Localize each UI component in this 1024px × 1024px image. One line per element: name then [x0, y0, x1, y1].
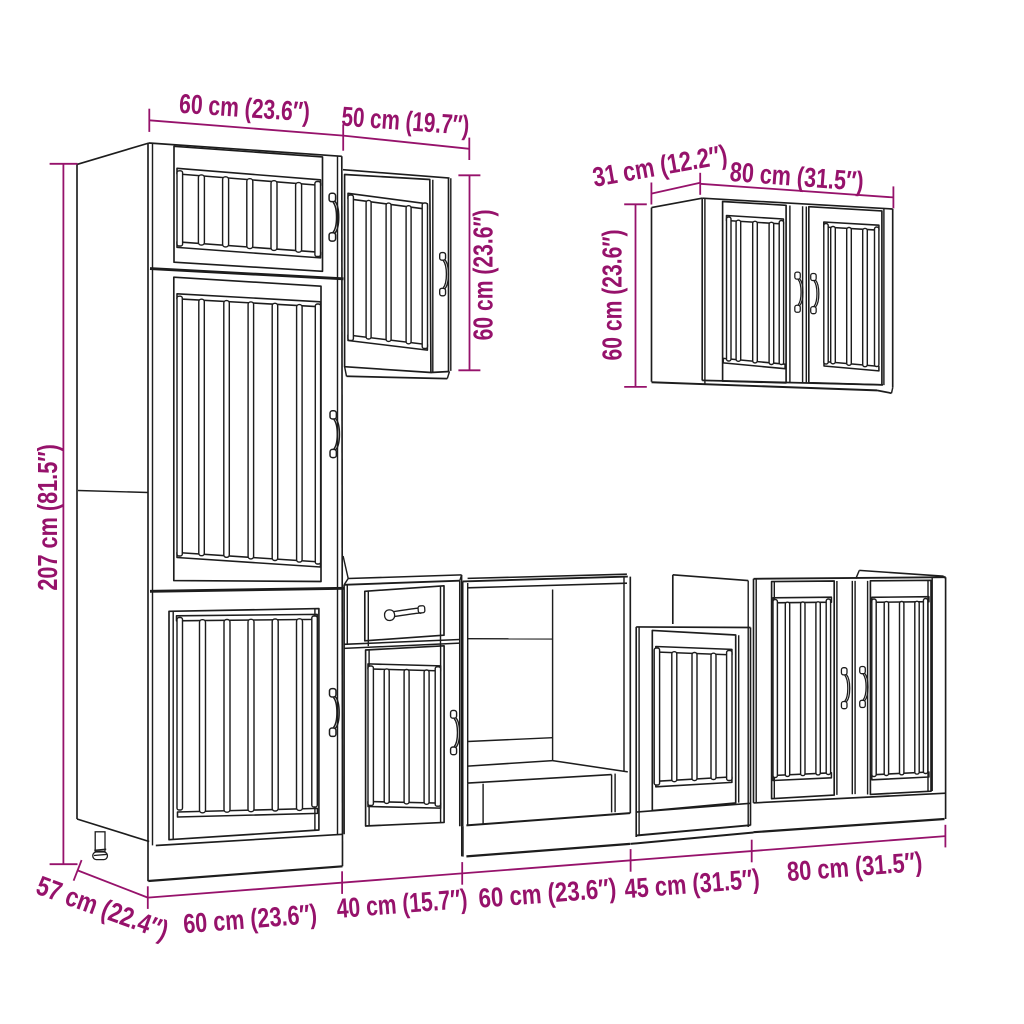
- svg-text:207 cm (81.5″): 207 cm (81.5″): [32, 444, 63, 591]
- svg-text:60 cm (23.6″): 60 cm (23.6″): [596, 230, 627, 361]
- svg-text:60 cm (23.6″): 60 cm (23.6″): [467, 209, 498, 340]
